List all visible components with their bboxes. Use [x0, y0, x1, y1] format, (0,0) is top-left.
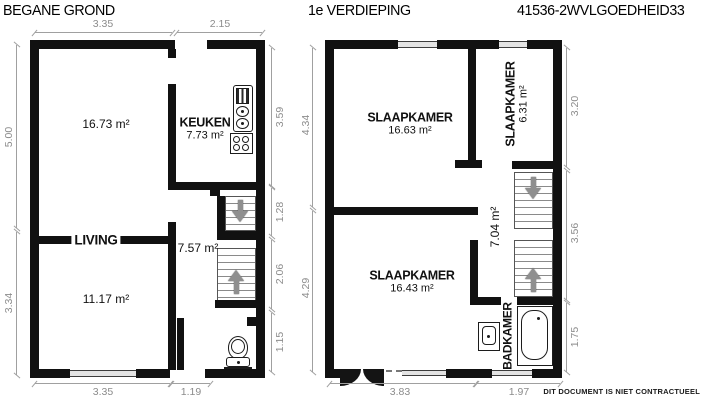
room-area: 16.63 m²: [367, 125, 452, 137]
dimension-line: [566, 48, 567, 167]
dimension-label: 1.75: [569, 327, 581, 347]
wall-segment: [455, 160, 482, 168]
wall-segment: [325, 40, 398, 49]
stairs-up-arrow-icon: [525, 268, 541, 294]
wall-segment: [470, 297, 501, 305]
dimension-label: 3.56: [569, 223, 581, 243]
stairs-down-arrow-icon: [525, 177, 541, 201]
wall-segment: [553, 40, 562, 378]
window-icon: [492, 370, 532, 376]
dimension-line: [312, 211, 313, 372]
dimension-line: [312, 48, 313, 207]
room-label-group: SLAAPKAMER 6.31 m²: [505, 61, 530, 146]
room-area: 7.04 m²: [489, 207, 501, 248]
room-label: SLAAPKAMER: [505, 61, 518, 146]
wall-segment: [532, 369, 562, 378]
dimension-line: [566, 303, 567, 372]
dimension-line: [330, 383, 475, 384]
wall-segment: [470, 240, 478, 302]
window-icon: [402, 370, 446, 376]
wall-segment: [517, 297, 554, 305]
door-threshold: [386, 370, 402, 372]
window-icon: [499, 41, 527, 48]
dimension-label: 3.83: [390, 386, 410, 398]
room-label: SLAAPKAMER: [369, 270, 454, 283]
bathtub-icon: [517, 306, 553, 366]
disclaimer-text: DIT DOCUMENT IS NIET CONTRACTUEEL: [543, 387, 700, 396]
room-area: 16.43 m²: [369, 283, 454, 295]
room-label-group: SLAAPKAMER 16.43 m²: [369, 270, 454, 295]
room-area: 6.31 m²: [518, 61, 530, 146]
dimension-label: 3.20: [569, 96, 581, 116]
dimension-label: 4.34: [300, 115, 312, 135]
room-label-group: SLAAPKAMER 16.63 m²: [367, 112, 452, 137]
wall-segment: [437, 40, 499, 49]
wall-segment: [446, 369, 492, 378]
wall-segment: [468, 49, 476, 161]
wall-segment: [333, 207, 478, 215]
dimension-label: 4.29: [300, 278, 312, 298]
dimension-line: [477, 383, 560, 384]
window-icon: [398, 41, 437, 48]
dimension-label: 1.97: [509, 386, 529, 398]
room-label: SLAAPKAMER: [367, 112, 452, 125]
wall-segment: [512, 161, 554, 169]
first-floor-plan: SLAAPKAMER 16.63 m² SLAAPKAMER 6.31 m² S…: [0, 0, 702, 402]
room-label: BADKAMER: [502, 302, 515, 370]
washbasin-icon: [478, 322, 500, 351]
floorplan-document: BEGANE GROND 1e VERDIEPING 41536-2WVLGOE…: [0, 0, 702, 402]
dimension-line: [566, 171, 567, 300]
